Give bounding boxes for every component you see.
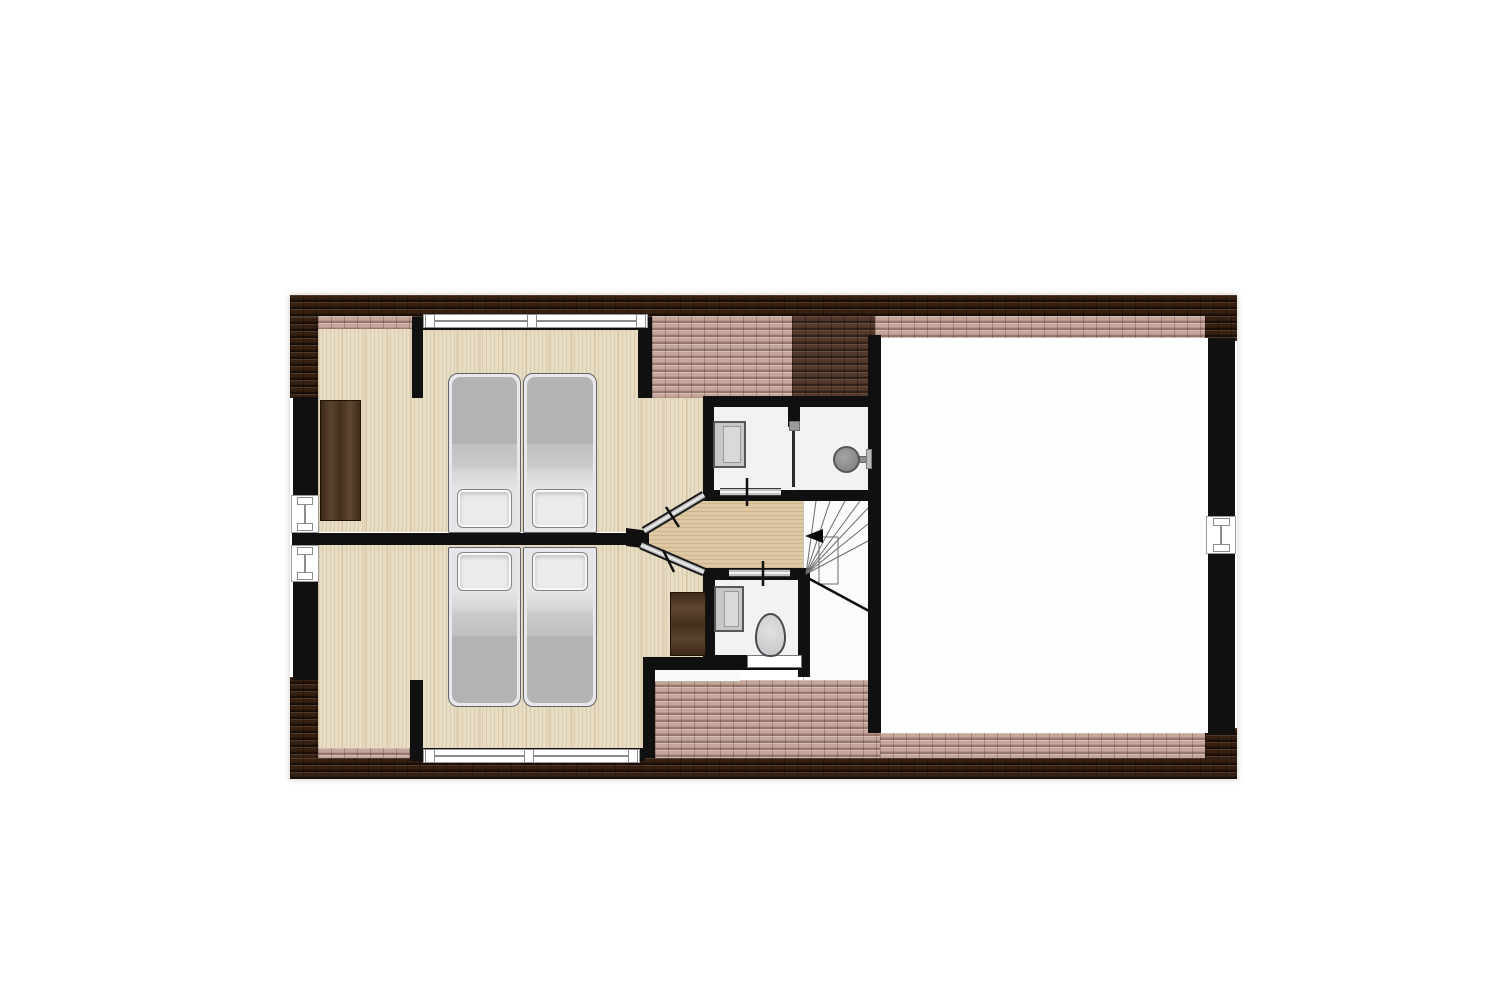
door-bedroom-top xyxy=(644,495,704,531)
stair-direction-arrow-icon xyxy=(805,529,823,543)
door-bedroom-bottom xyxy=(641,545,704,572)
floor-plan-canvas xyxy=(0,0,1500,1000)
diagonal-overlay xyxy=(0,0,1500,1000)
